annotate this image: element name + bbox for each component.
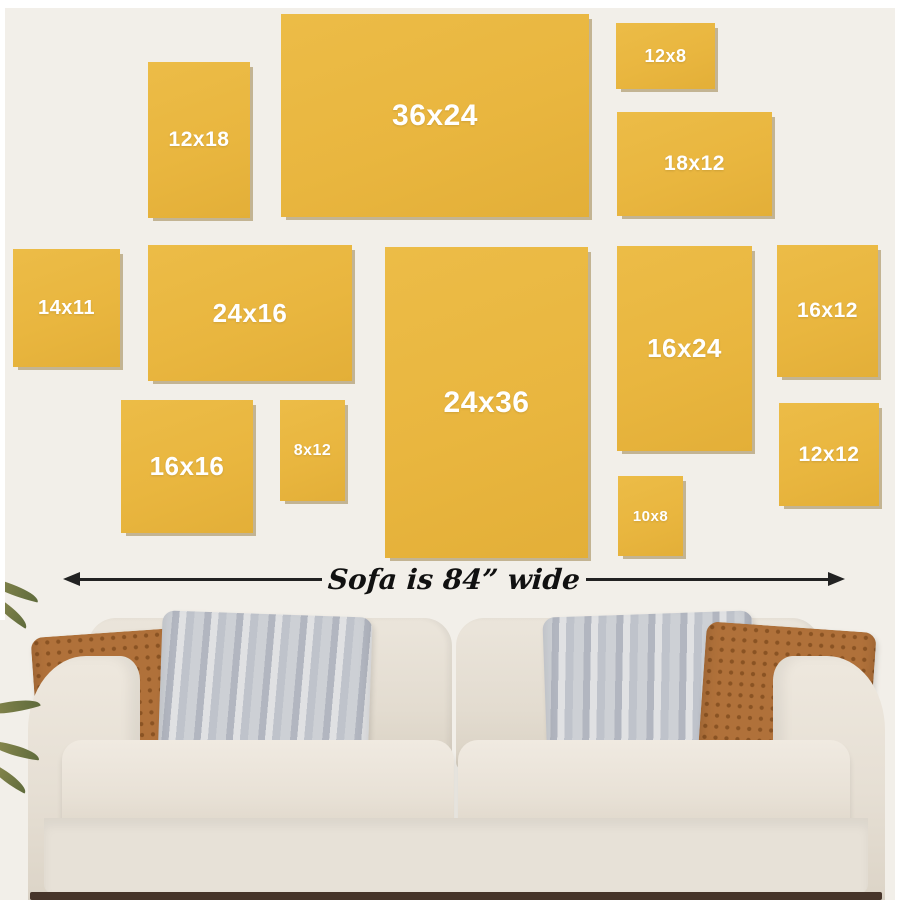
panel-size-label: 8x12 [294,442,332,460]
arrow-left-icon [63,572,80,586]
arrow-line [80,578,322,581]
sofa-width-label: Sofa is 84” wide [327,563,581,596]
floor-shadow [30,892,882,900]
canvas-panel-36x24: 36x24 [281,14,589,217]
canvas-panel-16x12: 16x12 [777,245,878,377]
panel-size-label: 18x12 [664,152,725,176]
sofa [28,612,885,900]
plant-leaf [0,576,41,602]
canvas-panel-12x18: 12x18 [148,62,250,218]
arrow-right-icon [828,572,845,586]
panel-size-label: 24x16 [213,298,288,329]
sofa-base [44,818,868,894]
size-guide-scene: 12x18 36x24 12x8 18x12 14x11 24x16 24x36… [0,0,900,900]
frame-edge-right [895,0,900,900]
canvas-panel-24x16: 24x16 [148,245,352,381]
panel-size-label: 12x18 [169,128,230,152]
arrow-line [586,578,828,581]
canvas-panel-8x12: 8x12 [280,400,345,501]
panel-size-label: 16x16 [150,451,225,482]
canvas-panel-24x36: 24x36 [385,247,588,558]
panel-size-label: 24x36 [444,386,530,420]
sofa-width-indicator: Sofa is 84” wide [63,562,845,596]
canvas-panel-12x8: 12x8 [616,23,715,89]
panel-size-label: 14x11 [38,297,95,320]
canvas-panel-16x16: 16x16 [121,400,253,533]
canvas-panel-12x12: 12x12 [779,403,879,506]
canvas-panel-18x12: 18x12 [617,112,772,216]
canvas-panel-10x8: 10x8 [618,476,683,556]
frame-edge-top [0,0,900,8]
panel-size-label: 12x8 [644,46,686,67]
canvas-panel-16x24: 16x24 [617,246,752,451]
frame-edge-left [0,0,5,620]
panel-size-label: 16x24 [647,333,722,364]
canvas-panel-14x11: 14x11 [13,249,120,367]
panel-size-label: 36x24 [392,99,478,133]
panel-size-label: 10x8 [633,508,668,525]
panel-size-label: 16x12 [797,299,858,323]
plant-leaf [0,762,30,793]
panel-size-label: 12x12 [799,443,860,467]
